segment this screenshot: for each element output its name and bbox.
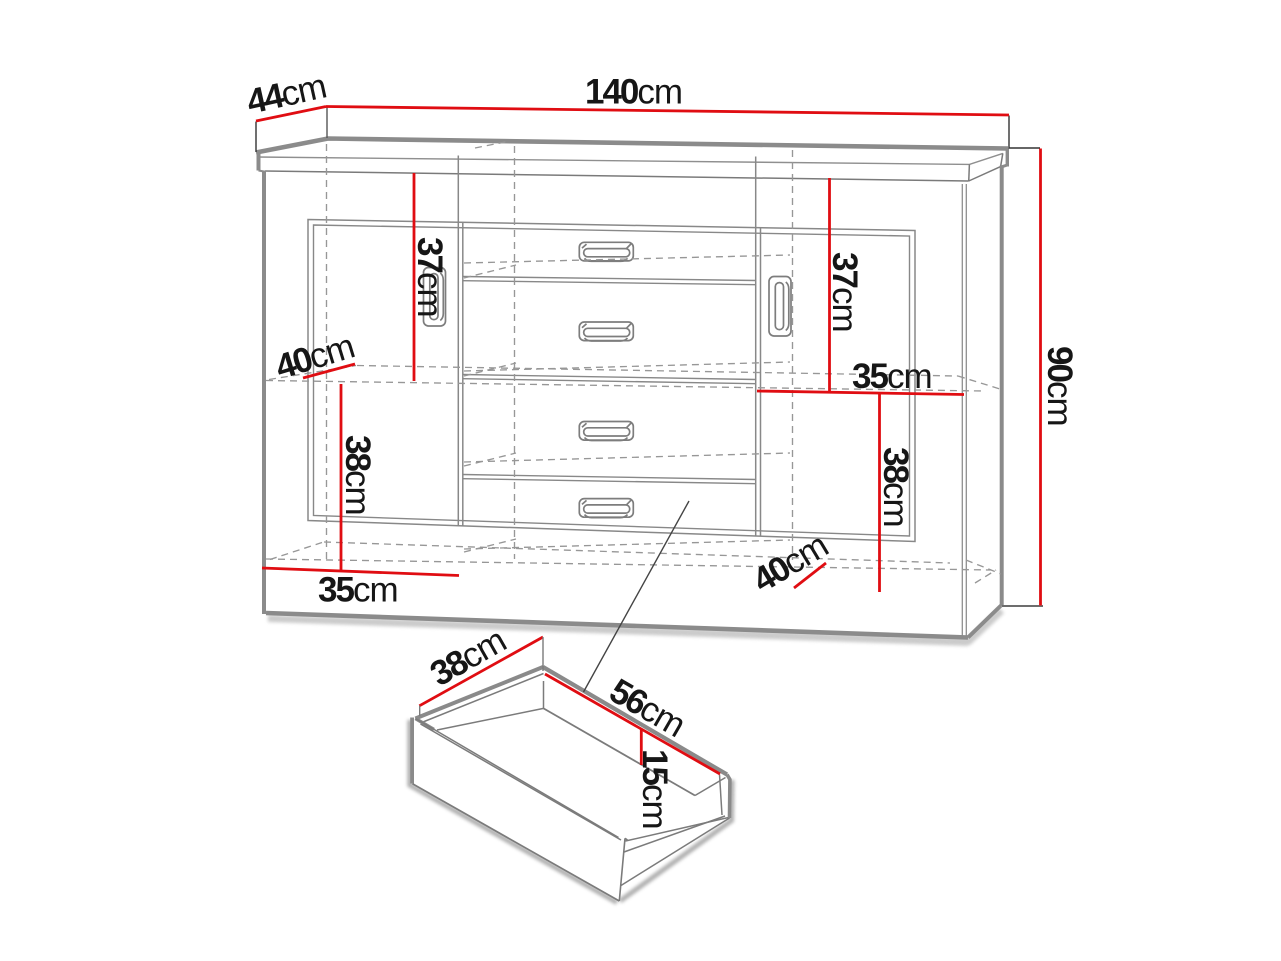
- svg-text:15cm: 15cm: [635, 749, 674, 829]
- svg-text:35cm: 35cm: [852, 357, 932, 396]
- svg-text:38cm: 38cm: [338, 435, 377, 515]
- svg-text:37cm: 37cm: [410, 237, 449, 317]
- svg-text:38cm: 38cm: [876, 447, 915, 527]
- svg-text:40cm: 40cm: [271, 327, 359, 388]
- svg-text:90cm: 90cm: [1040, 346, 1079, 426]
- svg-text:140cm: 140cm: [585, 73, 682, 112]
- svg-text:37cm: 37cm: [825, 252, 864, 332]
- svg-text:35cm: 35cm: [318, 571, 398, 610]
- svg-text:44cm: 44cm: [243, 67, 329, 122]
